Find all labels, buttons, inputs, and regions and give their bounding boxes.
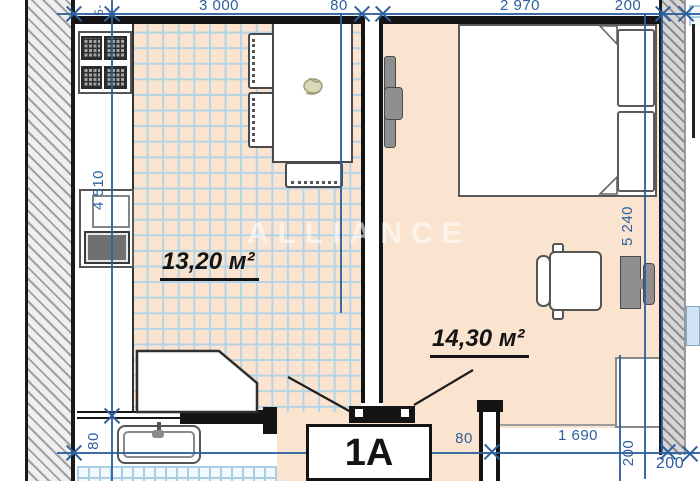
room-label-bedroom: 14,30 м² bbox=[430, 325, 529, 358]
dimension-tick bbox=[374, 5, 392, 23]
post-notch bbox=[401, 409, 409, 417]
dimension-line-right-inner bbox=[644, 13, 646, 479]
adjacent-window bbox=[686, 306, 700, 346]
dim-bottom-segment: 1 690 bbox=[543, 428, 613, 444]
burner-icon bbox=[81, 36, 102, 60]
dim-top-wall: 200 bbox=[606, 0, 650, 14]
dim-kitchen-width: 3 000 bbox=[183, 0, 255, 14]
dimension-tick bbox=[677, 5, 695, 23]
dim-bedroom-depth: 5 240 bbox=[620, 191, 636, 261]
desk-chair bbox=[549, 251, 602, 311]
pillow bbox=[617, 29, 655, 107]
extension-line-kitchen bbox=[340, 13, 342, 313]
dim-shaft: 200 bbox=[621, 429, 637, 477]
dimension-tick bbox=[103, 407, 121, 425]
bottom-wall-segment bbox=[180, 410, 263, 424]
dim-bath-offset: 80 bbox=[86, 424, 102, 458]
dim-door-offset: 80 bbox=[449, 431, 479, 447]
adjacent-wall bbox=[692, 24, 695, 138]
floor-plan: 5- 3 000 80 2 970 200 4 510 5 240 80 80 … bbox=[0, 0, 700, 481]
tv-unit-body bbox=[384, 87, 403, 120]
dimension-tick bbox=[654, 5, 672, 23]
partition-wall bbox=[361, 16, 383, 403]
adjacent-wall-line bbox=[497, 424, 615, 426]
burner-icon bbox=[104, 66, 127, 89]
dimension-tick bbox=[65, 444, 83, 462]
dim-bottom-wall: 200 bbox=[645, 456, 695, 472]
sink-basin bbox=[84, 231, 130, 264]
dimension-tick bbox=[65, 5, 83, 23]
bathroom-tiles bbox=[77, 466, 277, 481]
burner-icon bbox=[104, 36, 127, 60]
exterior-wall-left bbox=[25, 0, 75, 481]
door-post bbox=[263, 407, 277, 434]
corner-wall-cap bbox=[477, 400, 503, 412]
dim-top-edge-fragment: 5- bbox=[91, 0, 107, 21]
unit-label: 1A bbox=[345, 432, 394, 474]
post-notch bbox=[355, 409, 363, 417]
duct-shaft bbox=[615, 357, 661, 428]
dim-kitchen-depth: 4 510 bbox=[91, 155, 107, 225]
faucet-base-icon bbox=[152, 430, 164, 438]
exterior-wall-right bbox=[659, 0, 686, 455]
dimension-tick bbox=[483, 443, 501, 461]
dim-bedroom-width: 2 970 bbox=[484, 0, 556, 14]
dimension-tick bbox=[353, 5, 371, 23]
dining-chair bbox=[285, 162, 343, 188]
burner-icon bbox=[81, 66, 102, 89]
dimension-line-right-outer bbox=[661, 13, 663, 454]
unit-label-box: 1A bbox=[306, 424, 432, 481]
watermark: ALLIANCE bbox=[247, 217, 471, 251]
pillow bbox=[617, 111, 655, 192]
room-label-kitchen: 13,20 м² bbox=[160, 248, 259, 281]
dim-partition: 80 bbox=[325, 0, 353, 14]
